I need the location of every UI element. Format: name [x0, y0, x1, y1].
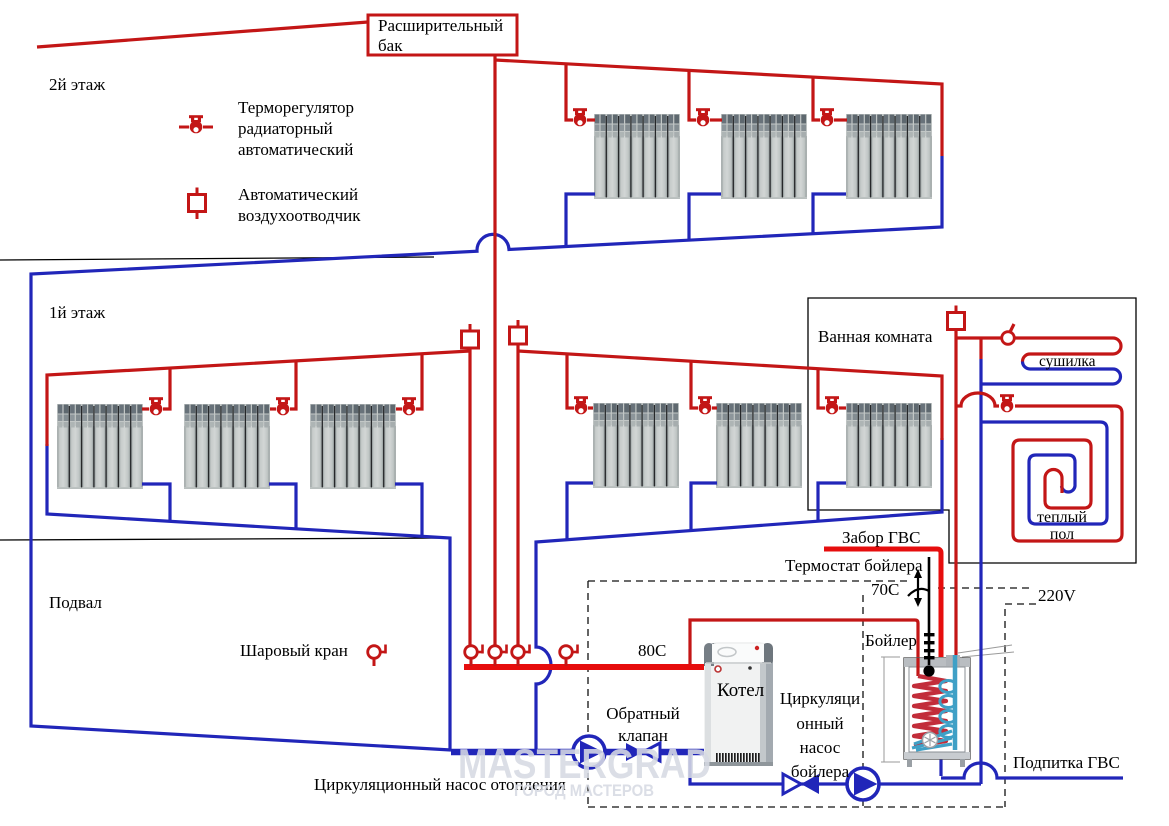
svg-text:Обратный: Обратный: [606, 704, 680, 723]
svg-text:Автоматический: Автоматический: [238, 185, 358, 204]
svg-text:Расширительный: Расширительный: [378, 16, 503, 35]
svg-text:Забор ГВС: Забор ГВС: [842, 528, 920, 547]
svg-text:радиаторный: радиаторный: [238, 119, 333, 138]
svg-text:70C: 70C: [871, 580, 899, 599]
svg-text:Подвал: Подвал: [49, 593, 102, 612]
svg-text:Котел: Котел: [717, 680, 765, 701]
svg-text:ГОРОД МАСТЕРОВ: ГОРОД МАСТЕРОВ: [514, 782, 654, 800]
svg-text:MASTERGRAD: MASTERGRAD: [458, 740, 711, 787]
svg-text:Подпитка ГВС: Подпитка ГВС: [1013, 753, 1120, 772]
svg-text:онный: онный: [796, 714, 843, 733]
svg-text:Циркуляци: Циркуляци: [780, 689, 860, 708]
svg-text:автоматический: автоматический: [238, 140, 353, 159]
svg-text:80C: 80C: [638, 641, 666, 660]
svg-text:Бойлер: Бойлер: [865, 631, 917, 650]
svg-text:Ванная комната: Ванная комната: [818, 327, 933, 346]
svg-text:воздухоотводчик: воздухоотводчик: [238, 206, 361, 225]
svg-text:пол: пол: [1050, 526, 1074, 543]
svg-text:1й этаж: 1й этаж: [49, 303, 105, 322]
svg-text:Терморегулятор: Терморегулятор: [238, 98, 354, 117]
svg-text:220V: 220V: [1038, 586, 1077, 605]
svg-text:бак: бак: [378, 36, 403, 55]
svg-text:2й этаж: 2й этаж: [49, 75, 105, 94]
svg-text:Шаровый кран: Шаровый кран: [240, 641, 348, 660]
svg-text:сушилка: сушилка: [1039, 353, 1096, 370]
svg-text:теплый: теплый: [1037, 509, 1087, 526]
svg-text:насос: насос: [800, 738, 841, 757]
svg-text:Термостат бойлера: Термостат бойлера: [785, 556, 923, 575]
svg-text:бойлера: бойлера: [791, 762, 850, 781]
